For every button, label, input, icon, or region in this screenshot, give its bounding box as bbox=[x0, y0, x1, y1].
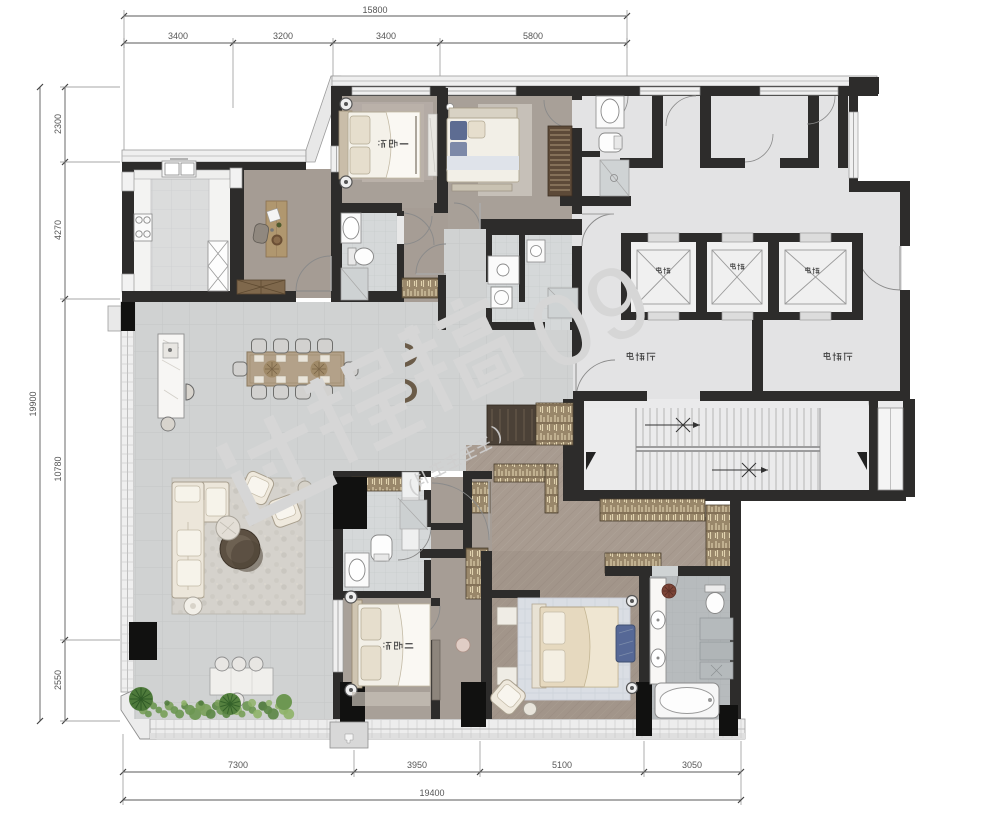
svg-text:2300: 2300 bbox=[53, 114, 63, 134]
svg-text:10780: 10780 bbox=[53, 456, 63, 481]
svg-text:3400: 3400 bbox=[376, 31, 396, 41]
svg-text:2550: 2550 bbox=[53, 670, 63, 690]
svg-text:3200: 3200 bbox=[273, 31, 293, 41]
svg-text:5100: 5100 bbox=[552, 760, 572, 770]
svg-text:19400: 19400 bbox=[419, 788, 444, 798]
svg-text:4270: 4270 bbox=[53, 220, 63, 240]
svg-text:15800: 15800 bbox=[362, 5, 387, 15]
svg-text:19900: 19900 bbox=[28, 391, 38, 416]
svg-text:7300: 7300 bbox=[228, 760, 248, 770]
svg-text:5800: 5800 bbox=[523, 31, 543, 41]
svg-text:3400: 3400 bbox=[168, 31, 188, 41]
svg-text:3950: 3950 bbox=[407, 760, 427, 770]
svg-text:3050: 3050 bbox=[682, 760, 702, 770]
